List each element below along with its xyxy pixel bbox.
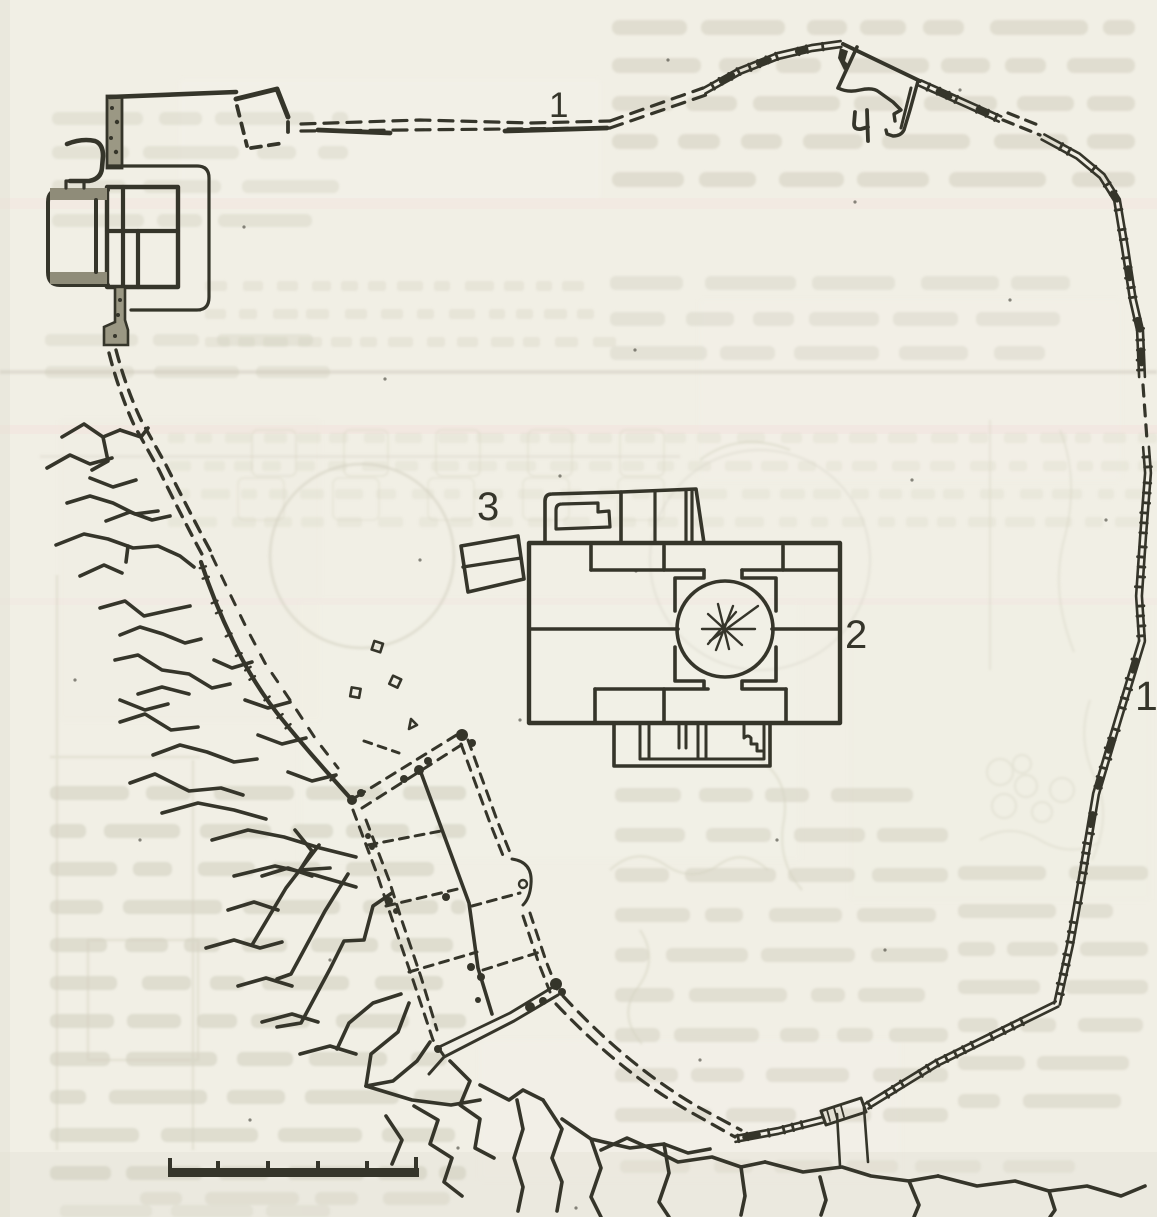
svg-text:2: 2 bbox=[845, 613, 867, 657]
svg-text:1: 1 bbox=[549, 86, 568, 125]
svg-text:1: 1 bbox=[1135, 673, 1157, 719]
svg-text:3: 3 bbox=[477, 485, 499, 529]
